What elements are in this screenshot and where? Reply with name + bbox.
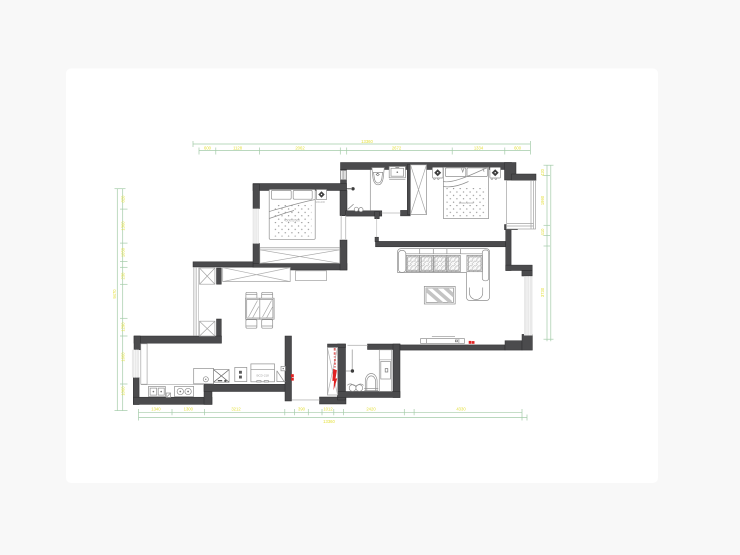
svg-text:600: 600 [514, 145, 522, 150]
svg-text:13360: 13360 [323, 419, 335, 424]
svg-text:410: 410 [540, 228, 545, 236]
svg-text:1360: 1360 [120, 221, 125, 231]
svg-text:230: 230 [120, 272, 125, 280]
svg-text:9470: 9470 [112, 289, 117, 299]
svg-text:1012: 1012 [323, 407, 333, 412]
svg-text:4500x2600: 4500x2600 [284, 219, 300, 223]
svg-text:BCD-218: BCD-218 [257, 374, 270, 378]
svg-text:1128: 1128 [233, 145, 243, 150]
svg-text:3730: 3730 [540, 287, 545, 297]
svg-text:600: 600 [204, 145, 212, 150]
svg-text:1990: 1990 [540, 195, 545, 205]
svg-text:1660: 1660 [120, 352, 125, 362]
svg-text:1300: 1300 [184, 407, 194, 412]
svg-text:1340: 1340 [151, 407, 161, 412]
svg-text:3212: 3212 [231, 407, 241, 412]
svg-text:4330: 4330 [456, 407, 466, 412]
svg-text:390: 390 [298, 407, 306, 412]
svg-text:13360: 13360 [361, 139, 373, 144]
svg-text:500x400: 500x400 [315, 200, 326, 204]
svg-text:420: 420 [540, 168, 545, 176]
svg-text:1334: 1334 [474, 145, 484, 150]
svg-text:2672: 2672 [392, 145, 402, 150]
svg-text:1800x2000: 1800x2000 [459, 201, 474, 205]
svg-text:2062: 2062 [295, 145, 305, 150]
svg-text:1050: 1050 [120, 247, 125, 257]
svg-text:1060: 1060 [120, 386, 125, 396]
svg-text:2420: 2420 [366, 407, 376, 412]
svg-text:820: 820 [120, 195, 125, 203]
svg-text:1290: 1290 [120, 322, 125, 332]
